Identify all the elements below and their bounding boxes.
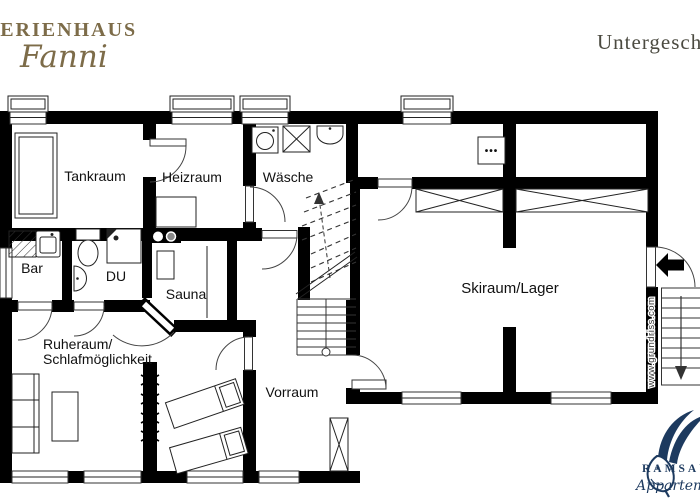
door-skiraum-upper	[378, 179, 412, 220]
room-label-vorraum: Vorraum	[266, 384, 319, 400]
tank	[15, 133, 57, 218]
room-label-heizraum: Heizraum	[162, 169, 222, 185]
window	[551, 392, 611, 404]
window	[259, 471, 299, 483]
panel-dots: •••	[485, 146, 499, 157]
room-label-sauna: Sauna	[166, 286, 207, 302]
sofa	[12, 374, 39, 453]
coffee-table	[52, 392, 78, 441]
door-waesche-heizraum	[246, 186, 286, 222]
door-du	[74, 302, 104, 336]
sauna-bucket	[157, 251, 174, 279]
watermark: www.grundriss.com	[646, 297, 657, 389]
door-vorraum-ruheraum	[216, 337, 253, 370]
lounger	[170, 427, 249, 473]
window	[84, 471, 141, 483]
window	[187, 471, 243, 483]
window	[403, 111, 451, 124]
toilet-icon	[76, 229, 100, 266]
shower-icon	[107, 229, 141, 263]
room-label-skiraum: Skiraum/Lager	[461, 280, 559, 297]
du-washbasin-icon	[74, 266, 87, 291]
window	[402, 392, 461, 404]
room-label-du: DU	[106, 268, 126, 284]
window	[12, 471, 68, 483]
utility-sink-icon	[283, 126, 310, 152]
walls	[0, 111, 658, 483]
room-label-bar: Bar	[21, 260, 43, 276]
ramsau-logo-subtitle: Appartements	[634, 478, 700, 494]
window	[10, 111, 46, 124]
door-vorraum-skiraum	[352, 355, 386, 389]
ferienhaus-logo: FERIENHAUS Fanni	[0, 20, 137, 73]
storage-racks	[416, 189, 648, 212]
washbasin-icon	[317, 126, 343, 144]
exterior-stairs	[661, 288, 700, 385]
room-label-ruheraum-line2: Schlafmöglichkeit	[43, 351, 152, 367]
washing-machine-icon	[252, 127, 278, 153]
room-label-tankraum: Tankraum	[64, 168, 125, 184]
light-wells	[8, 96, 453, 112]
lounger	[165, 379, 244, 429]
entrance-arrow-icon	[656, 253, 684, 277]
sauna-stove	[147, 229, 181, 243]
chimney	[156, 197, 196, 227]
room-label-waesche: Wäsche	[263, 169, 314, 185]
page-title: Untergeschoss	[597, 30, 700, 55]
door-waesche-hall	[262, 231, 297, 270]
window	[242, 111, 288, 124]
ferienhaus-logo-name: FERIENHAUS	[0, 20, 137, 40]
door-bar	[18, 302, 52, 340]
ramsau-logo-name: RAMSAU	[642, 463, 700, 475]
bar-counter	[9, 231, 60, 257]
panel-box: •••	[478, 137, 505, 164]
floor-plan-page: •••	[0, 0, 700, 500]
ramsau-logo: RAMSAU Appartements	[630, 406, 700, 500]
room-label-ruheraum-line1: Ruheraum/	[43, 336, 112, 352]
window	[172, 111, 232, 124]
ferienhaus-logo-script: Fanni	[20, 42, 137, 73]
cupboard	[330, 418, 348, 471]
floor-plan-drawing: •••	[0, 0, 700, 500]
